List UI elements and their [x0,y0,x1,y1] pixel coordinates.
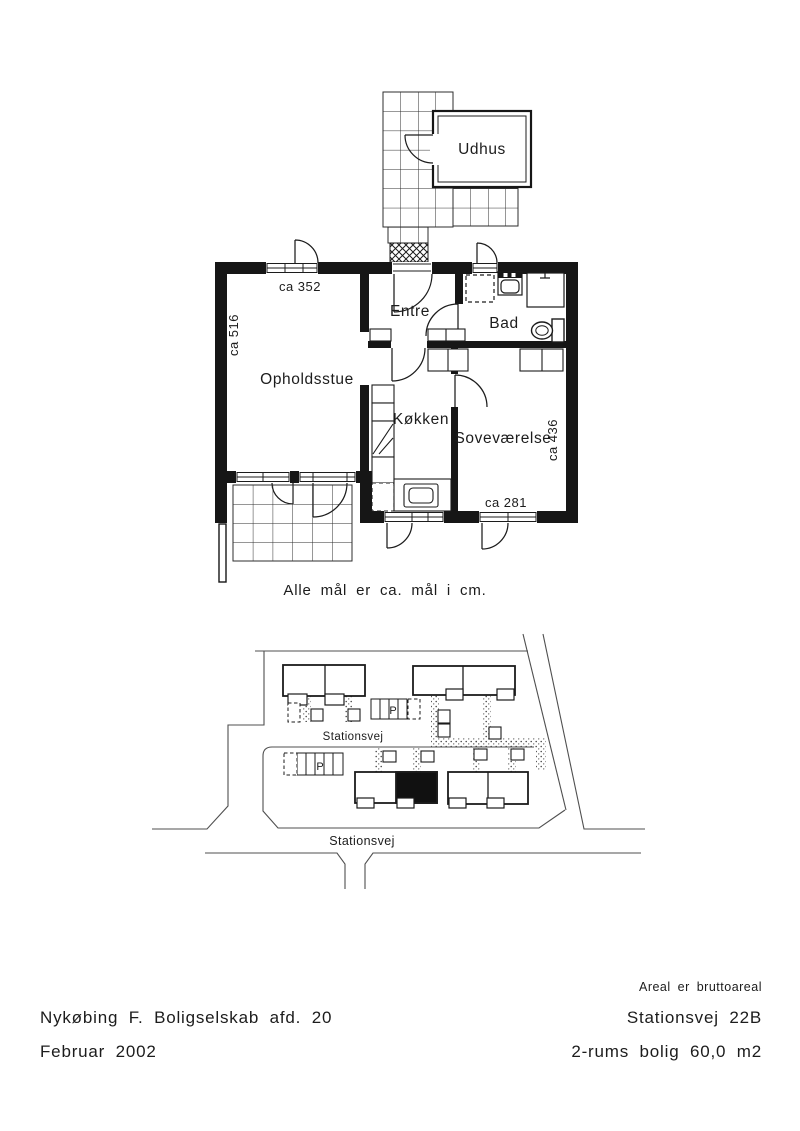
street-label-top: Stationsvej [323,731,384,743]
dim-living-depth: ca 516 [226,314,241,356]
shower-cabinet [527,273,564,307]
dim-bedroom-width: ca 281 [485,495,527,510]
window-bath-north [473,264,497,273]
bedroom-exterior-door-swing [482,523,508,549]
area-note: Areal er bruttoareal [639,980,762,994]
terrace-door-unit [300,473,355,482]
room-label-hall: Entre [390,303,430,320]
dim-living-width: ca 352 [279,279,321,294]
site-roads [152,634,645,889]
site-plan: P P Stationsvej Stationsvej [152,634,645,889]
room-label-shed: Udhus [458,141,506,158]
org-name: Nykøbing F. Boligselskab afd. 20 [40,1008,332,1027]
terrace-tiles [233,485,352,561]
room-label-living: Opholdsstue [260,371,354,388]
washbasin [498,272,522,295]
parking-label-top: P [389,705,396,717]
window-kitchen-south [385,513,443,522]
title-block: Nykøbing F. Boligselskab afd. 20 Februar… [40,980,762,1061]
doormat [390,243,428,262]
street-label-bottom: Stationsvej [329,834,395,848]
terrace-screen [219,524,226,582]
bath-exterior-door-swing [477,243,497,263]
walkway-tiles-extension [453,188,518,226]
window-living-south-left [237,473,289,482]
address: Stationsvej 22B [627,1008,762,1027]
room-label-kitchen: Køkken [393,411,449,428]
room-label-bedroom: Soveværelse [454,430,551,447]
kitchen-cabinet-column [372,385,394,511]
living-exterior-door-swing [295,240,318,263]
kitchen-exterior-door-swing [387,523,412,548]
apartment-floor-plan: Opholdsstue Entre Bad Køkken Soveværelse… [215,240,578,599]
measurement-note: Alle mål er ca. mål i cm. [283,582,486,599]
window-living-north [267,264,317,273]
shed-door-opening [430,134,440,165]
parking-row-bottom [284,753,343,775]
dwelling-info: 2-rums bolig 60,0 m2 [571,1042,762,1061]
walkway-neck [388,227,428,243]
window-bedroom-south [480,513,536,522]
kitchen-counter [394,479,451,511]
drawing-date: Februar 2002 [40,1042,157,1061]
floor-plan-document-page: Udhus [0,0,800,1131]
parking-label-bottom: P [316,761,323,773]
floor-plan-drawing: Udhus [0,0,800,1131]
dim-bedroom-depth: ca 436 [545,419,560,461]
room-label-bath: Bad [489,315,518,332]
shed-walkway-area: Udhus [383,92,531,262]
